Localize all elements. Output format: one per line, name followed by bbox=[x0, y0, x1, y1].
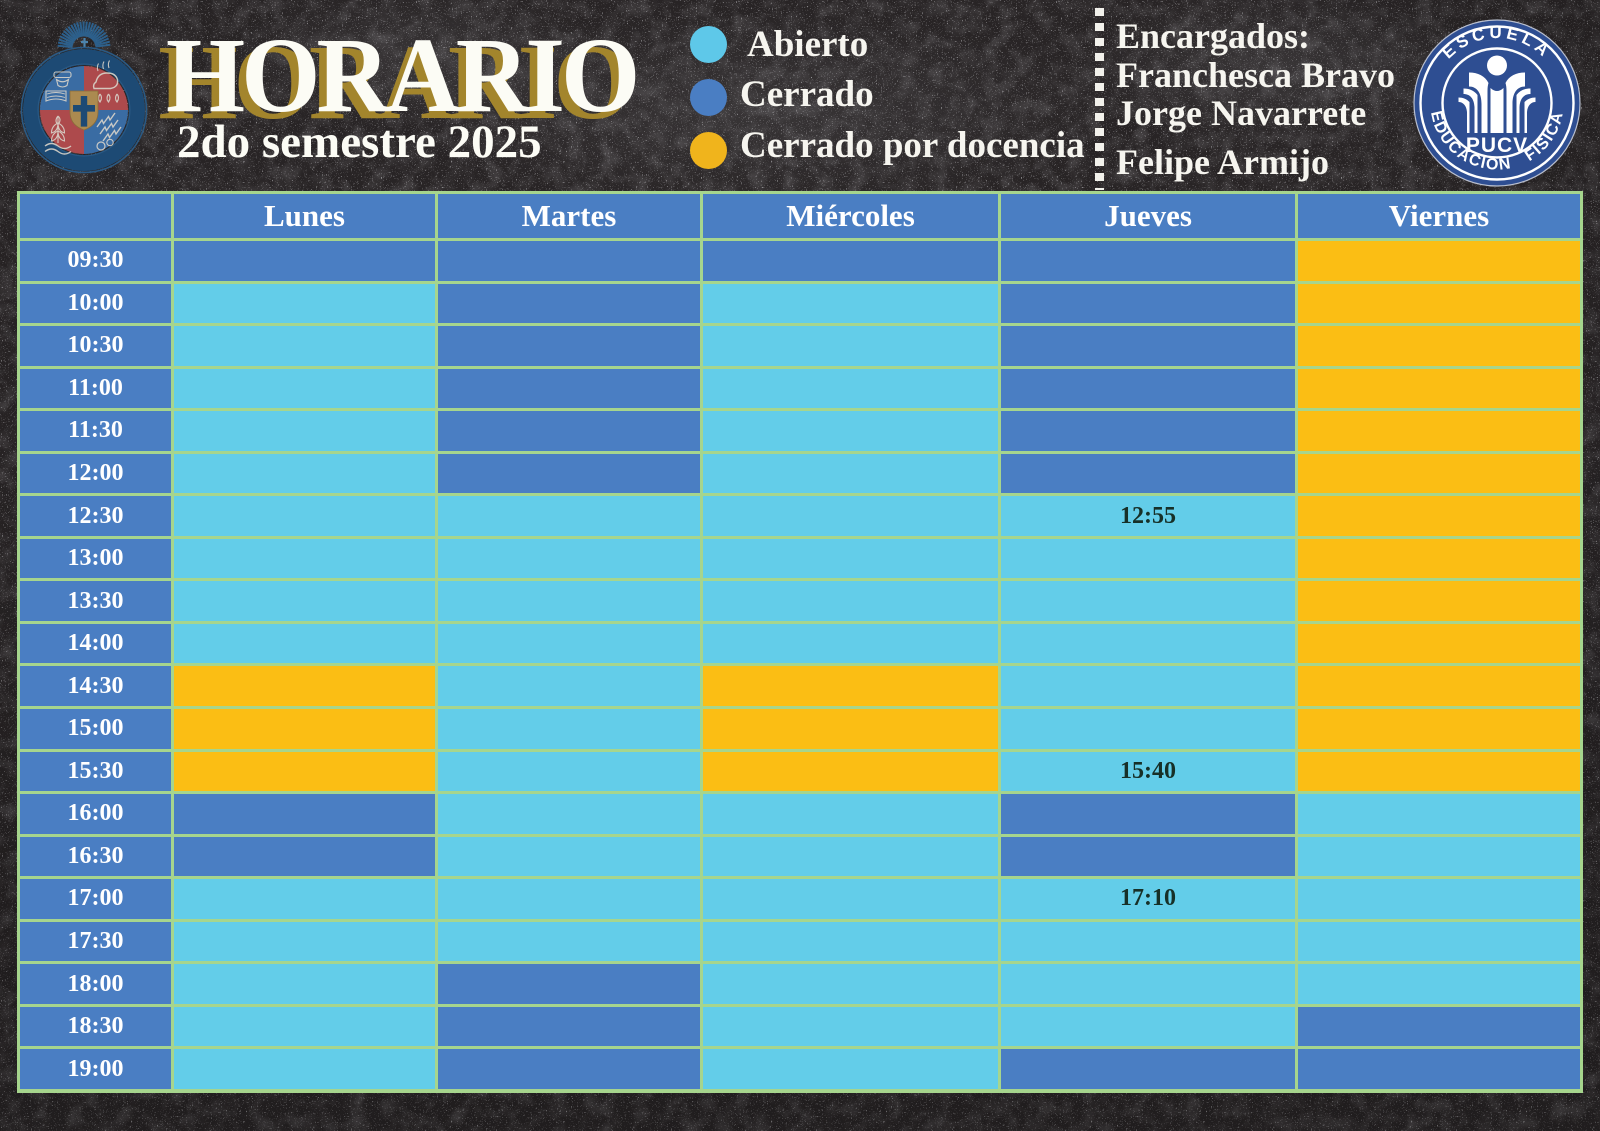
svg-text:PUCV: PUCV bbox=[1466, 134, 1528, 157]
